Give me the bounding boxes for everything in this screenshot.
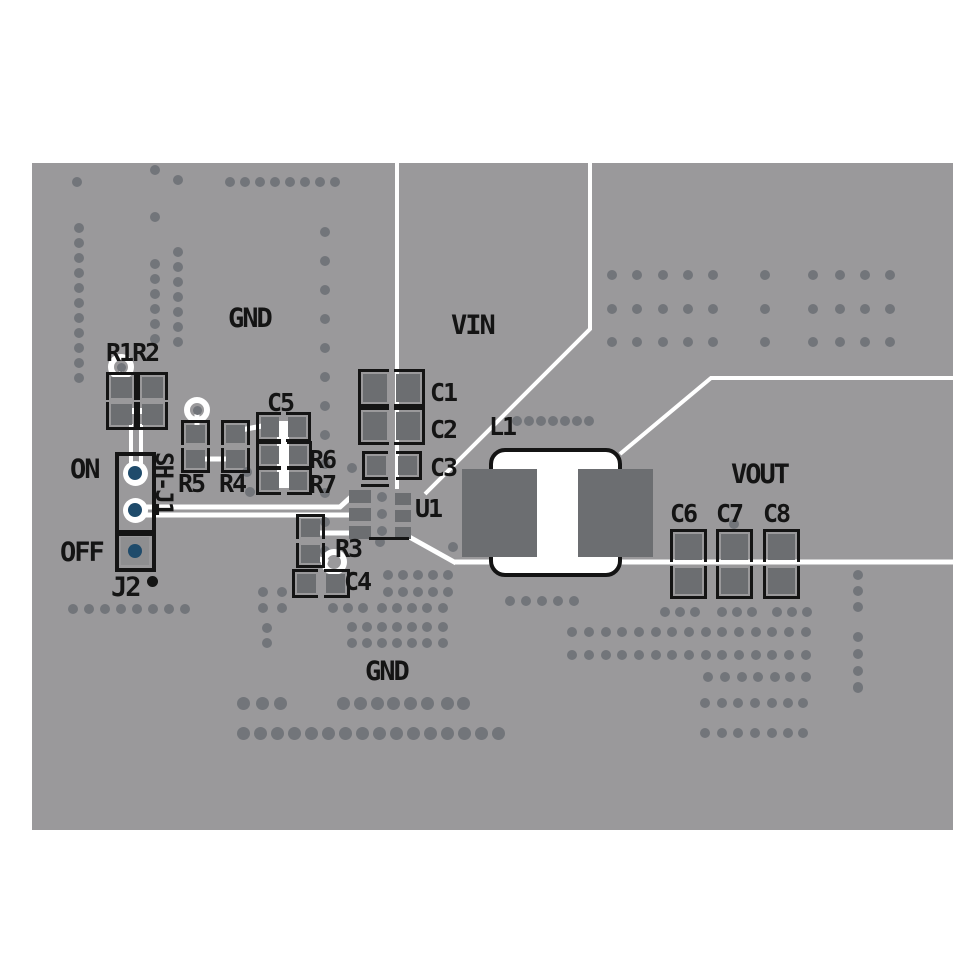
label-c8: C8 — [763, 501, 789, 526]
label-j2: J2 — [111, 574, 140, 601]
label-vout: VOUT — [731, 461, 788, 488]
label-r7: R7 — [309, 472, 335, 497]
label-r5: R5 — [178, 471, 204, 496]
label-c7: C7 — [716, 501, 742, 526]
label-u1: U1 — [415, 496, 441, 521]
label-vin: VIN — [451, 312, 494, 339]
label-c2: C2 — [430, 417, 456, 442]
label-c5: C5 — [267, 390, 293, 415]
silkscreen-label-layer: GNDVINVOUTGNDR1R2C5R5R4R6R7C1C2C3L1U1R3C… — [0, 0, 971, 971]
label-c1: C1 — [430, 380, 456, 405]
label-l1: L1 — [489, 414, 515, 439]
label-sh-j1: SH-J1 — [152, 452, 176, 514]
label-on: ON — [70, 456, 99, 483]
pcb-layout: GNDVINVOUTGNDR1R2C5R5R4R6R7C1C2C3L1U1R3C… — [0, 0, 971, 971]
label-r4: R4 — [219, 471, 245, 496]
label-off: OFF — [60, 539, 103, 566]
label-c4: C4 — [344, 569, 370, 594]
label-r3: R3 — [335, 536, 361, 561]
label-r6: R6 — [309, 447, 335, 472]
label-r1r2: R1R2 — [106, 340, 158, 365]
label-c6: C6 — [670, 501, 696, 526]
label-c3: C3 — [430, 455, 456, 480]
label-gnd-bottom: GND — [365, 658, 408, 685]
label-gnd-top: GND — [228, 305, 271, 332]
